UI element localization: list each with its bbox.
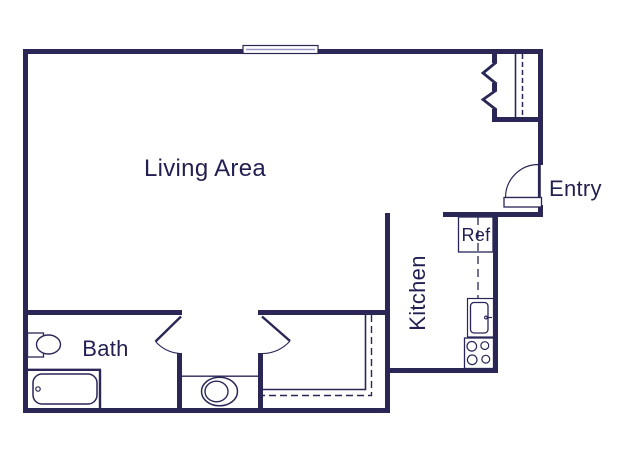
kitchen-sink bbox=[468, 299, 494, 338]
refrigerator-label: Ref bbox=[462, 225, 492, 245]
bathtub-basin bbox=[33, 374, 97, 404]
wall-closet-top bbox=[258, 310, 390, 315]
bathtub bbox=[28, 370, 101, 409]
wall-left bbox=[23, 49, 28, 413]
floor-plan: Living Area Entry Kitchen Ref Bath bbox=[0, 0, 640, 459]
wall-bath-stub bbox=[177, 353, 182, 413]
bath-door-leaf bbox=[156, 317, 182, 342]
wall-kitchen-top bbox=[443, 212, 543, 217]
kitchen-label: Kitchen bbox=[405, 255, 430, 330]
bath-door-swing bbox=[156, 342, 181, 354]
toilet-niche bbox=[182, 376, 258, 406]
entry-label: Entry bbox=[549, 176, 602, 201]
bathroom-sink bbox=[28, 333, 61, 357]
entry-door-swing bbox=[506, 165, 539, 198]
entry-closet-chevron-top bbox=[483, 62, 497, 84]
bathroom-sink-basin bbox=[37, 335, 61, 354]
entry-door bbox=[504, 165, 542, 208]
wall-bath-top bbox=[23, 310, 182, 315]
closet-rod-dashline bbox=[263, 315, 372, 396]
window bbox=[243, 46, 318, 54]
wall-closet-stub bbox=[258, 353, 263, 413]
closet-shelf-line bbox=[263, 315, 366, 390]
wall-entry-closet-left-a bbox=[492, 54, 497, 63]
wardrobe-closet bbox=[262, 315, 372, 396]
entry-closet bbox=[483, 54, 523, 117]
wall-entry-closet-bottom bbox=[492, 117, 543, 122]
entry-closet-chevron-bottom bbox=[483, 90, 497, 110]
wall-bottom bbox=[23, 408, 390, 413]
entry-threshold bbox=[504, 198, 542, 208]
bathroom bbox=[28, 317, 182, 410]
wall-right-upper bbox=[538, 49, 543, 165]
floor-plan-canvas: Living Area Entry Kitchen Ref Bath bbox=[0, 0, 640, 459]
closet-door-leaf bbox=[262, 317, 290, 342]
closet-door-swing bbox=[263, 341, 290, 354]
stove bbox=[465, 338, 494, 369]
living-area-label: Living Area bbox=[144, 155, 266, 182]
bath-label: Bath bbox=[82, 336, 128, 361]
